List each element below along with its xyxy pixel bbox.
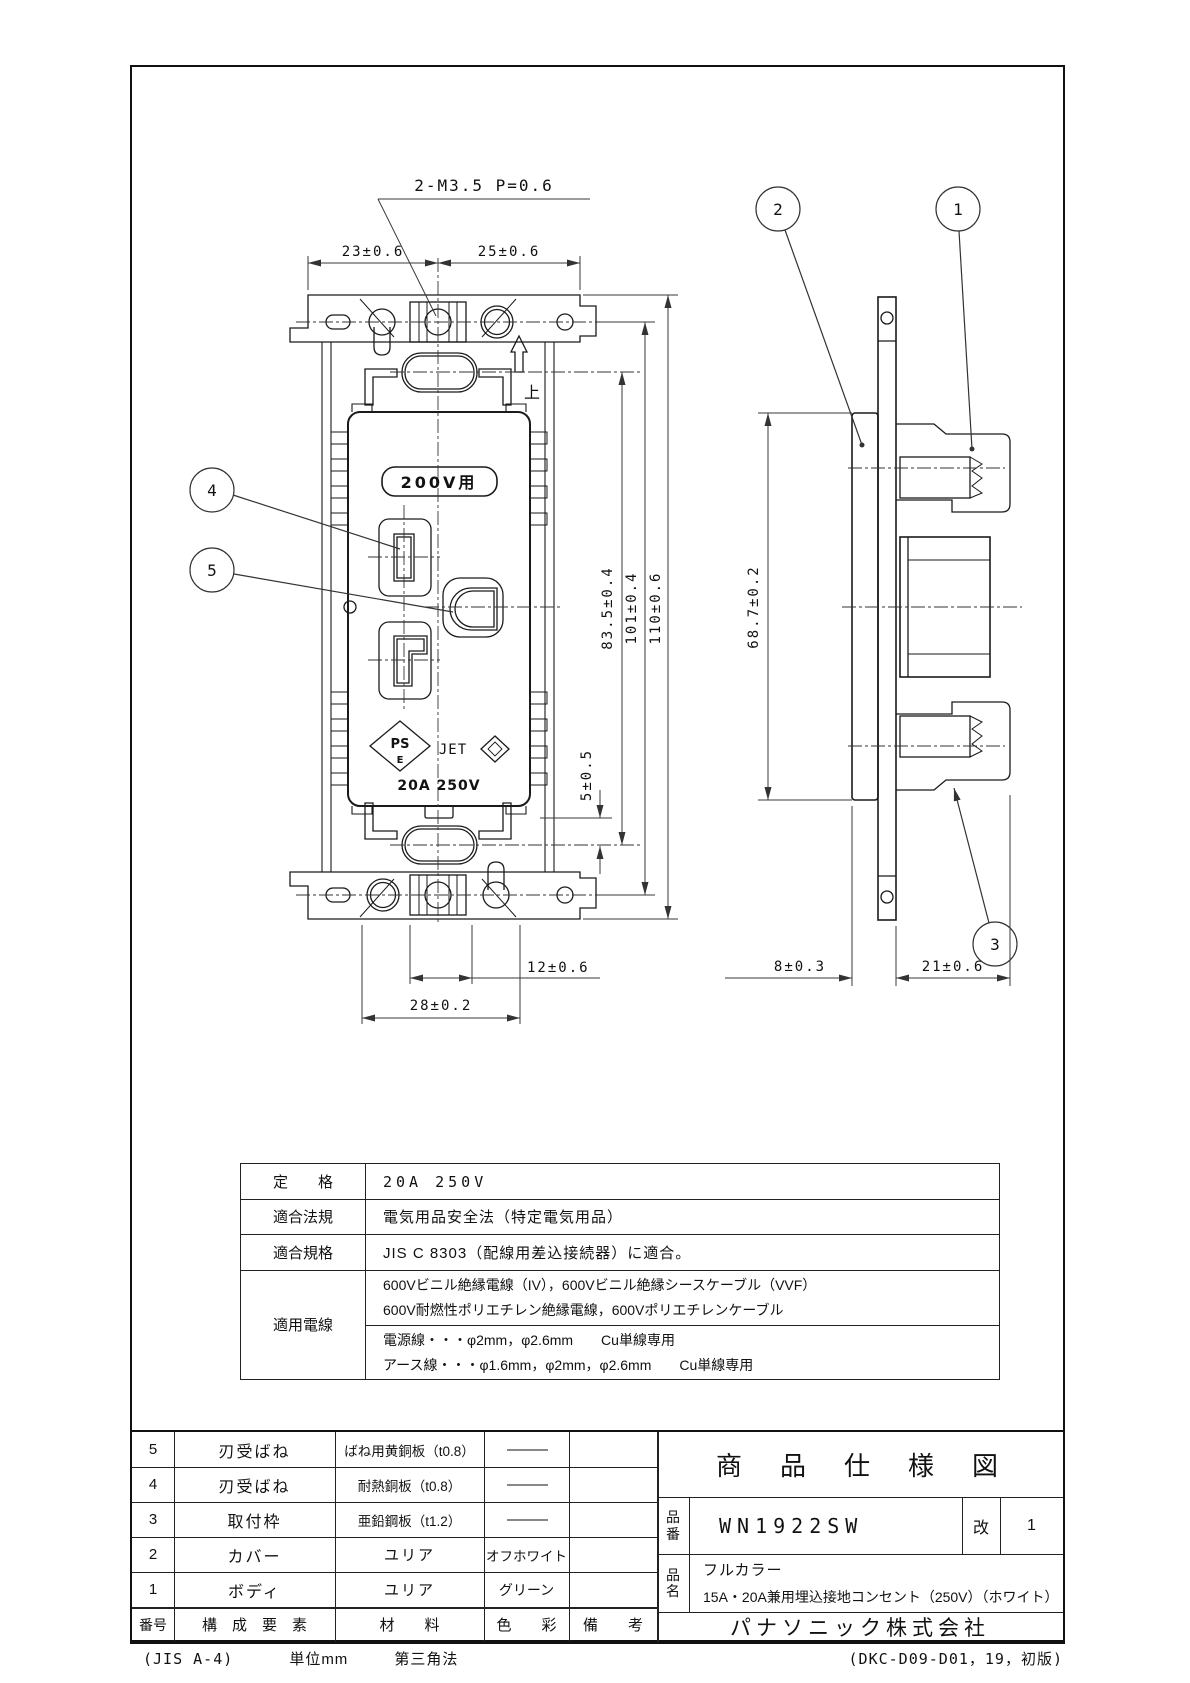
dim-83-5: 83.5±0.4 bbox=[600, 566, 616, 649]
cert-mark-icon bbox=[481, 736, 509, 762]
side-screw-hole bbox=[344, 601, 356, 613]
part-note bbox=[569, 1432, 657, 1467]
voltage-label: 200V用 bbox=[401, 473, 478, 492]
part-component: 刃受ばね bbox=[174, 1432, 335, 1467]
standard-value: JIS C 8303（配線用差込接続器）に適合。 bbox=[383, 1234, 991, 1270]
dim-12: 12±0.6 bbox=[527, 960, 590, 976]
orientation-mark: 上 bbox=[524, 384, 540, 402]
part-material: ばね用黄銅板（t0.8） bbox=[335, 1432, 484, 1467]
parts-and-title-table: 5 刃受ばね ばね用黄銅板（t0.8） ——— 4 刃受ばね 耐熱銅板（t0.8… bbox=[130, 1430, 1065, 1644]
part-no: 1 bbox=[132, 1572, 174, 1607]
part-note bbox=[569, 1537, 657, 1572]
balloon-5: 5 bbox=[207, 561, 217, 580]
part-no: 2 bbox=[132, 1537, 174, 1572]
part-color: ——— bbox=[484, 1432, 569, 1467]
part-color: オフホワイト bbox=[484, 1537, 569, 1572]
side-strap bbox=[878, 297, 896, 920]
footer-doc-number: (DKC-D09-D01，19，初版) bbox=[849, 1648, 1063, 1669]
balloon-2: 2 bbox=[773, 200, 783, 219]
rev-label: 改 bbox=[962, 1497, 1000, 1554]
header-component: 構 成 要 素 bbox=[174, 1607, 335, 1642]
dim-68-7: 68.7±0.2 bbox=[746, 565, 762, 648]
front-receptacle-features bbox=[370, 467, 509, 771]
rating-mark: 20A 250V bbox=[397, 778, 480, 794]
part-number: WN1922SW bbox=[719, 1497, 962, 1554]
dim-8: 8±0.3 bbox=[774, 959, 826, 975]
part-no-label: 品番 bbox=[657, 1497, 689, 1554]
front-dimensions bbox=[308, 199, 678, 1024]
lower-blade-slot bbox=[394, 636, 427, 686]
part-component: 取付枠 bbox=[174, 1502, 335, 1537]
part-component: カバー bbox=[174, 1537, 335, 1572]
part-color: ——— bbox=[484, 1502, 569, 1537]
law-label: 適合法規 bbox=[241, 1199, 365, 1234]
wire-label: 適用電線 bbox=[241, 1270, 365, 1379]
dim-25: 25±0.6 bbox=[478, 244, 541, 260]
rating-value: 20A 250V bbox=[383, 1164, 991, 1199]
part-no: 5 bbox=[132, 1432, 174, 1467]
part-note bbox=[569, 1572, 657, 1607]
dim-101: 101±0.4 bbox=[624, 571, 640, 644]
front-bottom-plate bbox=[290, 862, 596, 919]
product-name-line1: フルカラー bbox=[703, 1556, 1059, 1583]
header-note: 備 考 bbox=[569, 1607, 657, 1642]
side-view bbox=[852, 297, 1010, 920]
part-component: 刃受ばね bbox=[174, 1467, 335, 1502]
balloon-3: 3 bbox=[990, 935, 1000, 954]
jet-mark: JET bbox=[439, 742, 467, 758]
product-name-line2: 15A・20A兼用埋込接地コンセント（250V）（ホワイト） bbox=[703, 1583, 1061, 1610]
screw-note: 2-M3.5 P=0.6 bbox=[414, 176, 554, 195]
unit-note: 単位mm bbox=[289, 1651, 348, 1668]
part-no: 4 bbox=[132, 1467, 174, 1502]
rev-value: 1 bbox=[1000, 1497, 1063, 1554]
side-cover-flange bbox=[852, 413, 878, 800]
wire-diameter-line2: アース線・・・φ1.6mm，φ2mm，φ2.6mm Cu単線専用 bbox=[383, 1352, 995, 1378]
company-name: パナソニック株式会社 bbox=[657, 1612, 1063, 1642]
side-balloons bbox=[756, 187, 1017, 966]
part-no: 3 bbox=[132, 1502, 174, 1537]
dim-5: 5±0.5 bbox=[579, 749, 595, 801]
part-material: ユリア bbox=[335, 1537, 484, 1572]
part-note bbox=[569, 1467, 657, 1502]
spec-table: 定 格 20A 250V 適合法規 電気用品安全法（特定電気用品） 適合規格 J… bbox=[240, 1163, 1000, 1380]
pse-mark-text: PS bbox=[391, 737, 410, 752]
dim-110: 110±0.6 bbox=[648, 571, 664, 644]
standard-label: 適合規格 bbox=[241, 1234, 365, 1270]
side-centerlines bbox=[842, 468, 1022, 746]
projection-note: 第三角法 bbox=[394, 1651, 458, 1668]
header-color: 色 彩 bbox=[484, 1607, 569, 1642]
wire-value-line2: 600V耐燃性ポリエチレン絶縁電線，600Vポリエチレンケーブル bbox=[383, 1297, 995, 1323]
part-material: 耐熱銅板（t0.8） bbox=[335, 1467, 484, 1502]
dim-23: 23±0.6 bbox=[342, 244, 405, 260]
product-name-label: 品名 bbox=[657, 1554, 689, 1612]
rating-label: 定 格 bbox=[241, 1164, 365, 1199]
balloon-1: 1 bbox=[953, 200, 963, 219]
footer-left: (JIS A-4) 単位mm 第三角法 bbox=[143, 1648, 458, 1669]
part-material: ユリア bbox=[335, 1572, 484, 1607]
header-material: 材 料 bbox=[335, 1607, 484, 1642]
wire-diameter-line1: 電源線・・・φ2mm，φ2.6mm Cu単線専用 bbox=[383, 1327, 995, 1353]
drawing-title: 商 品 仕 様 図 bbox=[657, 1432, 1063, 1497]
part-component: ボディ bbox=[174, 1572, 335, 1607]
dim-21: 21±0.6 bbox=[922, 959, 985, 975]
wire-value-line1: 600Vビニル絶縁電線（IV），600Vビニル絶縁シースケーブル（VVF） bbox=[383, 1272, 995, 1298]
side-dimensions bbox=[725, 413, 1010, 986]
paper-size: (JIS A-4) bbox=[143, 1650, 233, 1668]
header-no: 番号 bbox=[132, 1607, 174, 1642]
pse-mark-e: E bbox=[397, 755, 404, 766]
front-top-plate bbox=[290, 295, 596, 355]
law-value: 電気用品安全法（特定電気用品） bbox=[383, 1199, 991, 1234]
spec-drawing-page: 2-M3.5 P=0.6 23±0.6 25±0.6 5±0.5 83.5±0.… bbox=[0, 0, 1190, 1683]
part-material: 亜鉛鋼板（t1.2） bbox=[335, 1502, 484, 1537]
dim-28: 28±0.2 bbox=[410, 998, 473, 1014]
ground-hole bbox=[450, 588, 497, 630]
part-color: ——— bbox=[484, 1467, 569, 1502]
balloon-4: 4 bbox=[207, 481, 217, 500]
part-note bbox=[569, 1502, 657, 1537]
part-color: グリーン bbox=[484, 1572, 569, 1607]
